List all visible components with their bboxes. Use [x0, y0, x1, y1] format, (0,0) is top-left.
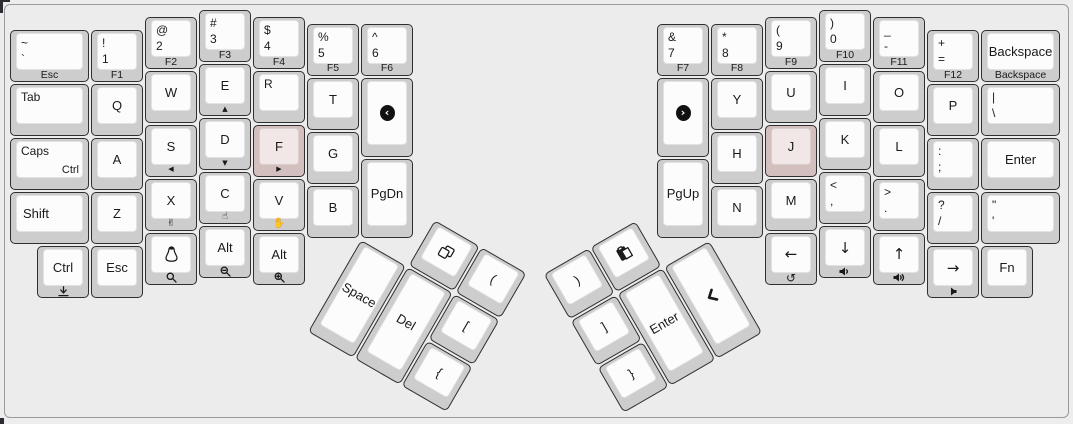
keycap-top	[987, 195, 1054, 232]
key-arrow-right[interactable]: →	[927, 246, 979, 298]
key-legend-top-left: R	[264, 76, 273, 92]
keyboard-layout-stage: ~ `Esc! 1F1@ 2F2# 3F3$ 4F4% 5F5^ 6F6TabQ…	[0, 0, 1073, 424]
key-legend-top-left: < ,	[830, 177, 837, 209]
key-legend-bottom-right: Ctrl	[62, 164, 79, 176]
key-period[interactable]: > .	[873, 179, 925, 231]
tri-up-icon: ▲	[222, 106, 227, 113]
key-front-legend: F12	[928, 69, 978, 81]
key-slash[interactable]: ? /	[927, 192, 979, 244]
key-legend	[151, 236, 191, 273]
key-legend: L	[879, 128, 919, 165]
key-legend: I	[825, 67, 865, 104]
key-legend: D	[205, 121, 245, 158]
key-q[interactable]: Q	[91, 84, 143, 136]
key-legend: PgUp	[663, 162, 703, 226]
key-legend-top-left: ) 0	[830, 15, 837, 47]
key-front-legend: F10	[820, 49, 870, 61]
key-front-legend: F2	[146, 56, 196, 68]
key-legend: U	[771, 74, 811, 111]
key-shift-left[interactable]: Shift	[10, 192, 89, 244]
chev-circle-left-icon: ‹	[380, 105, 395, 121]
key-5[interactable]: % 5F5	[307, 24, 359, 76]
download-icon	[58, 286, 69, 297]
key-front-legend: ▼	[200, 157, 250, 169]
key-r[interactable]: R	[253, 71, 305, 123]
key-legend-top-left: * 8	[722, 29, 729, 61]
key-legend: H	[717, 135, 757, 172]
key-arrow-up[interactable]: ↑	[873, 233, 925, 285]
key-m[interactable]: M	[765, 179, 817, 231]
key-u[interactable]: U	[765, 71, 817, 123]
key-legend-top-left: ^ 6	[372, 29, 379, 61]
key-legend: PgDn	[367, 162, 407, 226]
key-b[interactable]: B	[307, 186, 359, 238]
key-e[interactable]: E▲	[199, 64, 251, 116]
key-i[interactable]: I	[819, 64, 871, 116]
key-7[interactable]: & 7F7	[657, 24, 709, 76]
key-legend: →	[933, 249, 973, 286]
key-arrow-down[interactable]: ↓	[819, 226, 871, 278]
hand-paper-icon: ✋	[273, 219, 285, 229]
pointer-icon	[703, 287, 720, 305]
key-front-legend: ✋	[254, 218, 304, 230]
paste-icon	[614, 243, 633, 262]
copy-icon	[437, 242, 456, 261]
corner-artifact-top-left-h	[0, 0, 10, 2]
key-legend: ↓	[825, 229, 865, 266]
key-w[interactable]: W	[145, 71, 197, 123]
key-grave[interactable]: ~ `Esc	[10, 30, 89, 82]
key-legend-top-left: _ -	[884, 22, 891, 54]
undo-icon: ↺	[786, 272, 796, 284]
key-0[interactable]: ) 0F10	[819, 10, 871, 62]
key-legend: Ctrl	[43, 249, 83, 286]
key-semicolon[interactable]: : ;	[927, 138, 979, 190]
key-legend-top-left: Tab	[21, 89, 40, 105]
key-legend: V	[259, 182, 299, 219]
key-legend: J	[771, 128, 811, 165]
key-legend: E	[205, 67, 245, 104]
key-legend-top-left: $ 4	[264, 22, 271, 54]
key-front-legend: F11	[874, 56, 924, 68]
key-legend: X	[151, 182, 191, 219]
key-3[interactable]: # 3F3	[199, 10, 251, 62]
key-arrow-left[interactable]: ←↺	[765, 233, 817, 285]
key-legend-top-left: ! 1	[102, 35, 109, 67]
key-equals[interactable]: + =F12	[927, 30, 979, 82]
key-legend-top-left: @ 2	[156, 22, 168, 54]
corner-artifact-bottom-left	[0, 418, 4, 424]
key-caps[interactable]: CapsCtrl	[10, 138, 89, 190]
vol-down-icon	[839, 267, 851, 276]
key-media-next[interactable]: ›	[657, 78, 709, 157]
key-y[interactable]: Y	[711, 78, 763, 130]
key-legend: Z	[97, 195, 137, 232]
key-legend: G	[313, 135, 353, 172]
key-front-legend: ▲	[200, 103, 250, 115]
key-front-legend: ☝	[200, 211, 250, 223]
key-media-prev[interactable]: ‹	[361, 78, 413, 157]
key-2[interactable]: @ 2F2	[145, 17, 197, 69]
key-front-legend	[254, 272, 304, 284]
key-legend: F	[259, 128, 299, 165]
key-esc-left[interactable]: Esc	[91, 246, 143, 298]
key-c[interactable]: C☝	[199, 172, 251, 224]
key-n[interactable]: N	[711, 186, 763, 238]
tri-right-icon: ▶	[276, 166, 281, 173]
key-front-legend	[38, 285, 88, 297]
key-front-legend: ✌	[146, 218, 196, 230]
key-1[interactable]: ! 1F1	[91, 30, 143, 82]
key-enter-main[interactable]: Enter	[981, 138, 1060, 190]
key-front-legend	[820, 265, 870, 277]
key-s[interactable]: S◀	[145, 125, 197, 177]
key-front-legend: F7	[658, 63, 708, 75]
key-tab[interactable]: Tab	[10, 84, 89, 136]
key-pgup[interactable]: PgUp	[657, 159, 709, 238]
key-legend: K	[825, 121, 865, 158]
key-legend: Enter	[987, 141, 1054, 178]
key-front-legend	[200, 265, 250, 277]
key-legend: P	[933, 87, 973, 124]
keycap-top	[987, 87, 1054, 124]
key-front-legend: F5	[308, 63, 358, 75]
key-front-legend: F3	[200, 49, 250, 61]
loupe-plus-icon	[274, 272, 285, 283]
key-legend-top-left: Caps	[21, 143, 49, 159]
loupe-icon	[166, 272, 177, 283]
key-legend: Alt	[205, 229, 245, 266]
key-j[interactable]: J	[765, 125, 817, 177]
hand-point-icon: ☝	[222, 212, 228, 222]
key-legend-top-left: ~ `	[21, 35, 28, 67]
key-front-legend	[146, 272, 196, 284]
key-legend: Fn	[987, 249, 1027, 286]
key-legend: W	[151, 74, 191, 111]
key-fn[interactable]: Fn	[981, 246, 1033, 298]
key-t[interactable]: T	[307, 78, 359, 130]
key-legend: Esc	[97, 249, 137, 286]
key-minus[interactable]: _ -F11	[873, 17, 925, 69]
key-o[interactable]: O	[873, 71, 925, 123]
key-legend: C	[205, 175, 245, 212]
key-legend: T	[313, 81, 353, 118]
hand-scissors-icon: ✌	[167, 219, 175, 229]
tri-down-icon: ▼	[222, 160, 227, 167]
loupe-minus-icon	[220, 266, 231, 277]
key-legend: ←	[771, 236, 811, 273]
key-legend-top-left: + =	[938, 35, 945, 67]
key-front-legend: F8	[712, 63, 762, 75]
key-front-legend: ▶	[254, 164, 304, 176]
key-legend: N	[717, 189, 757, 226]
key-legend-top-left: > .	[884, 184, 891, 216]
key-front-legend: Esc	[11, 69, 88, 81]
key-front-legend: F9	[766, 56, 816, 68]
key-legend: Backspace	[987, 33, 1054, 70]
key-comma[interactable]: < ,	[819, 172, 871, 224]
key-v[interactable]: V✋	[253, 179, 305, 231]
key-quote[interactable]: " '	[981, 192, 1060, 244]
key-legend: ↑	[879, 236, 919, 273]
key-a[interactable]: A	[91, 138, 143, 190]
key-z[interactable]: Z	[91, 192, 143, 244]
key-front-legend	[874, 272, 924, 284]
vol-off-icon	[949, 287, 957, 296]
key-legend-top-left: # 3	[210, 15, 217, 47]
vol-up-icon	[893, 273, 906, 282]
key-legend: S	[151, 128, 191, 165]
key-legend: B	[313, 189, 353, 226]
key-g[interactable]: G	[307, 132, 359, 184]
key-4[interactable]: $ 4F4	[253, 17, 305, 69]
key-f[interactable]: F▶	[253, 125, 305, 177]
key-legend: A	[97, 141, 137, 178]
key-alt-1[interactable]: Alt	[199, 226, 251, 278]
key-legend: O	[879, 74, 919, 111]
key-front-legend	[928, 285, 978, 297]
key-front-legend: Backspace	[982, 69, 1059, 81]
key-9[interactable]: ( 9F9	[765, 17, 817, 69]
key-h[interactable]: H	[711, 132, 763, 184]
key-x[interactable]: X✌	[145, 179, 197, 231]
key-front-legend: F4	[254, 56, 304, 68]
key-ctrl-left[interactable]: Ctrl	[37, 246, 89, 298]
key-front-legend: ◀	[146, 164, 196, 176]
key-legend-top-left: " '	[992, 197, 996, 229]
key-pgdn[interactable]: PgDn	[361, 159, 413, 238]
key-legend-top-left: | \	[992, 89, 995, 121]
key-legend: M	[771, 182, 811, 219]
key-k[interactable]: K	[819, 118, 871, 170]
penguin-icon	[165, 246, 178, 262]
key-6[interactable]: ^ 6F6	[361, 24, 413, 76]
key-legend-top-left: ? /	[938, 197, 945, 229]
key-p[interactable]: P	[927, 84, 979, 136]
key-front-legend: F1	[92, 69, 142, 81]
key-legend: Alt	[259, 236, 299, 273]
key-linux[interactable]	[145, 233, 197, 285]
tri-left-icon: ◀	[168, 166, 173, 173]
key-legend: Q	[97, 87, 137, 124]
key-legend-top-left: % 5	[318, 29, 329, 61]
key-alt-2[interactable]: Alt	[253, 233, 305, 285]
key-8[interactable]: * 8F8	[711, 24, 763, 76]
key-backspace[interactable]: BackspaceBackspace	[981, 30, 1060, 82]
key-front-legend: ↺	[766, 272, 816, 284]
key-legend: ‹	[367, 81, 407, 145]
key-legend-top-left: ( 9	[776, 22, 783, 54]
key-legend-top-left: & 7	[668, 29, 676, 61]
chev-circle-right-icon: ›	[676, 105, 691, 121]
key-legend: ›	[663, 81, 703, 145]
key-legend: Shift	[16, 195, 83, 232]
key-legend: Y	[717, 81, 757, 118]
key-front-legend: F6	[362, 63, 412, 75]
key-l[interactable]: L	[873, 125, 925, 177]
key-d[interactable]: D▼	[199, 118, 251, 170]
key-legend-top-left: : ;	[938, 143, 941, 175]
key-backslash[interactable]: | \	[981, 84, 1060, 136]
